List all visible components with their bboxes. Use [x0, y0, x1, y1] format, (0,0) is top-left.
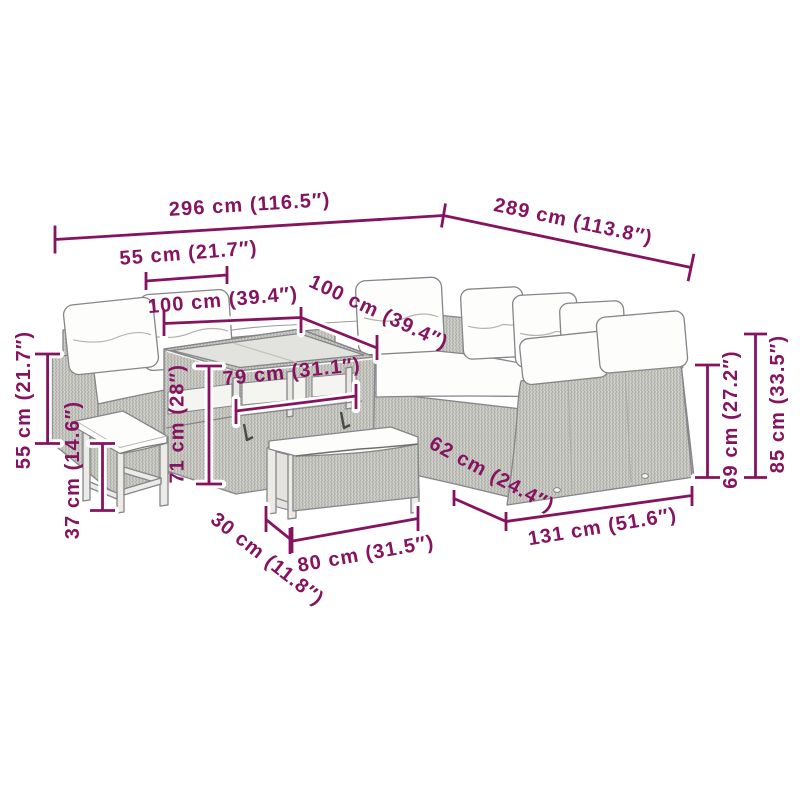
svg-text:69 cm (27.2″): 69 cm (27.2″)	[720, 350, 742, 488]
svg-text:71 cm (28″): 71 cm (28″)	[167, 364, 189, 484]
svg-text:85 cm (33.5″): 85 cm (33.5″)	[767, 335, 789, 473]
svg-text:55 cm (21.7″): 55 cm (21.7″)	[13, 331, 35, 469]
svg-text:37 cm (14.6″): 37 cm (14.6″)	[62, 401, 84, 539]
